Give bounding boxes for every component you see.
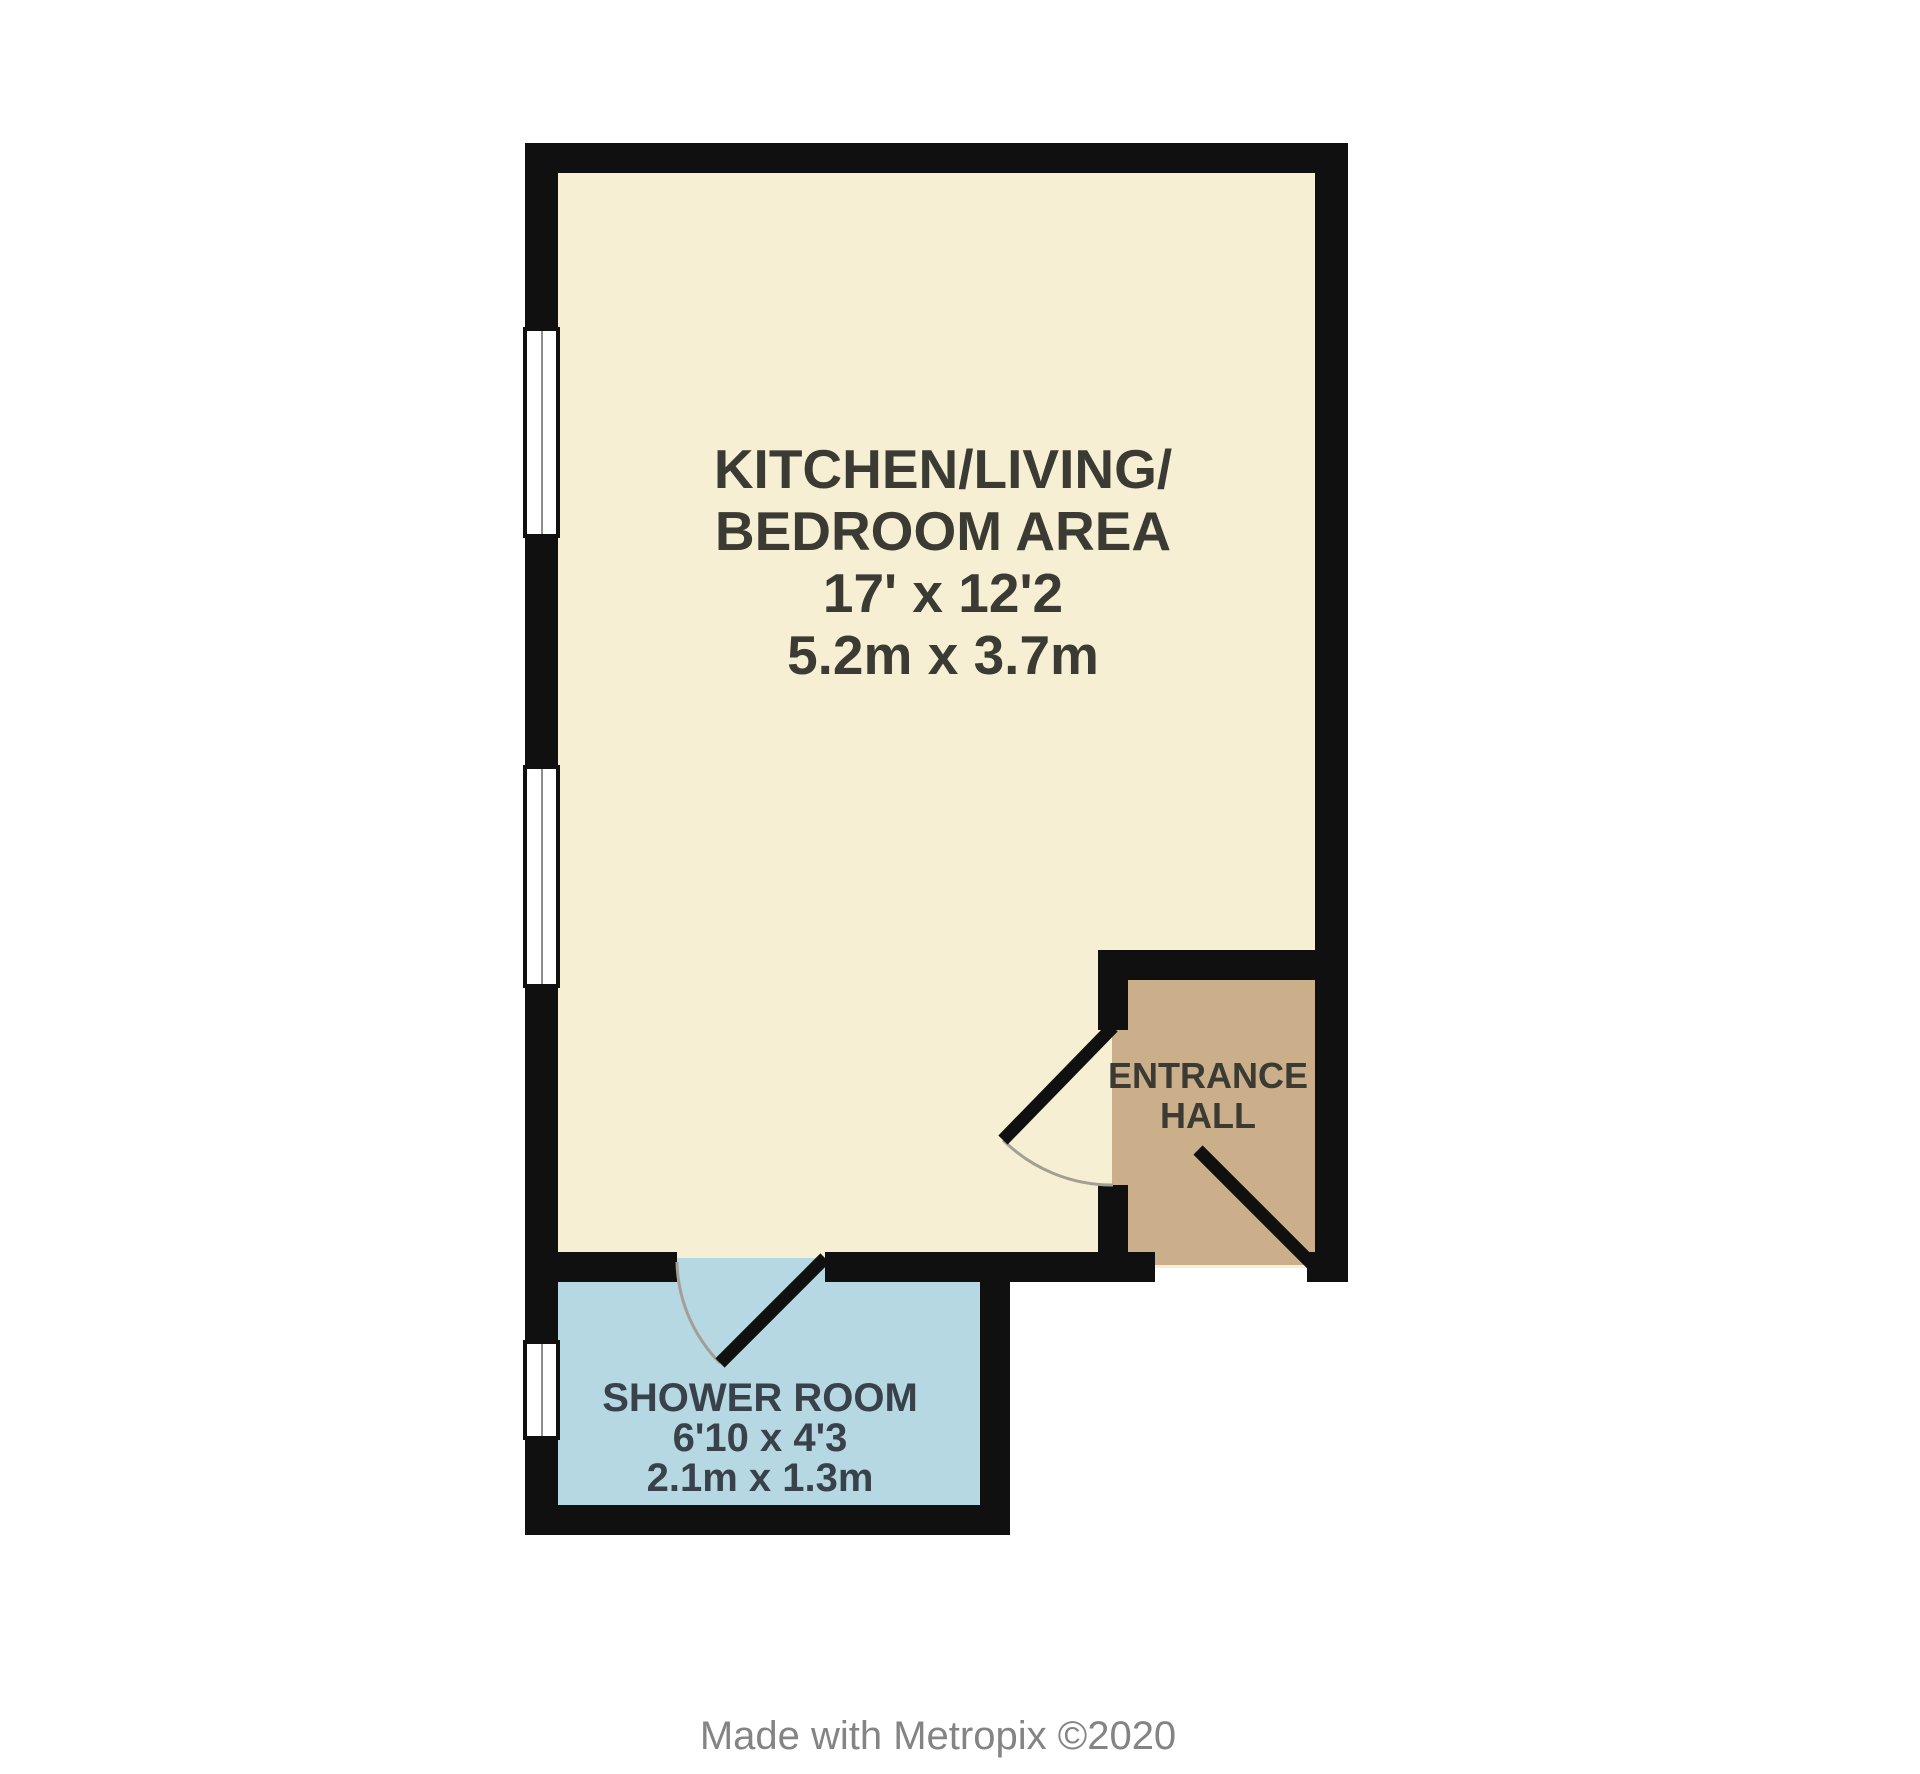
room-label-shower-room: SHOWER ROOM 6'10 x 4'3 2.1m x 1.3m <box>602 1378 918 1498</box>
window-main-lower <box>523 765 560 988</box>
room-name-line-2: BEDROOM AREA <box>714 500 1172 562</box>
window-shower <box>523 1340 560 1440</box>
wall-top <box>525 143 1348 173</box>
wall-left-upper <box>525 143 558 327</box>
room-dims-metric: 2.1m x 1.3m <box>602 1458 918 1498</box>
room-dims-imperial: 17' x 12'2 <box>714 562 1172 624</box>
wall-shower-bottom <box>525 1505 1010 1535</box>
room-name-line-1: KITCHEN/LIVING/ <box>714 438 1172 500</box>
window-pane-line <box>541 1344 543 1436</box>
floorplan-canvas: KITCHEN/LIVING/ BEDROOM AREA 17' x 12'2 … <box>0 0 1920 1774</box>
wall-hall-left-stub <box>1098 1185 1128 1282</box>
wall-hall-left-upper <box>1098 950 1128 1030</box>
window-main-upper <box>523 327 560 538</box>
room-name-line-1: SHOWER ROOM <box>602 1378 918 1418</box>
metropix-credit: Made with Metropix ©2020 <box>700 1714 1176 1758</box>
wall-shower-right <box>980 1252 1010 1535</box>
window-pane-line <box>541 331 543 534</box>
wall-left-between-windows <box>525 538 558 765</box>
wall-bottom-right-corner-segment <box>1307 1252 1348 1282</box>
window-pane-line <box>541 769 543 984</box>
room-name-line-2: HALL <box>1108 1096 1308 1136</box>
room-dims-imperial: 6'10 x 4'3 <box>602 1418 918 1458</box>
room-name-line-1: ENTRANCE <box>1108 1056 1308 1096</box>
wall-hall-top <box>1098 950 1318 980</box>
room-dims-metric: 5.2m x 3.7m <box>714 624 1172 686</box>
room-label-kitchen-living-bedroom: KITCHEN/LIVING/ BEDROOM AREA 17' x 12'2 … <box>714 438 1172 686</box>
wall-right <box>1315 143 1348 1282</box>
wall-shower-top-left-segment <box>525 1252 677 1282</box>
room-label-entrance-hall: ENTRANCE HALL <box>1108 1056 1308 1136</box>
wall-left-lower <box>525 988 558 1340</box>
